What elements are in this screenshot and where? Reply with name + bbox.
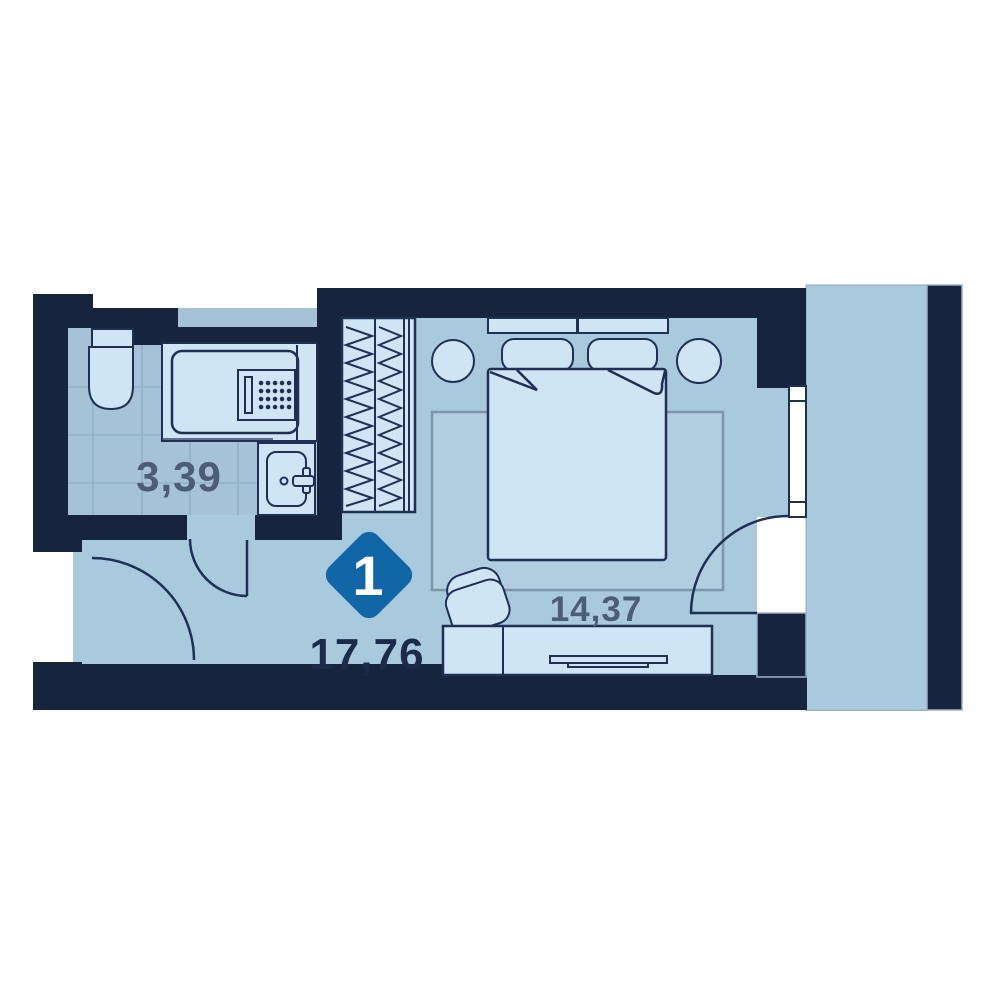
area-label-bedroom: 14,37 bbox=[550, 590, 643, 629]
sink-icon bbox=[258, 443, 315, 515]
balcony-floor bbox=[806, 285, 927, 710]
wall-bottom-left-corner bbox=[33, 662, 82, 710]
tv-screen bbox=[550, 656, 667, 663]
hallway-floor bbox=[73, 528, 342, 668]
window-frame bbox=[789, 386, 806, 517]
area-label-bathroom: 3,39 bbox=[136, 453, 222, 500]
tv-stand-icon bbox=[443, 626, 712, 675]
wall-entry-step bbox=[33, 515, 82, 552]
bedroom-floor-window-nook bbox=[757, 385, 789, 517]
tv-base bbox=[568, 663, 648, 667]
toilet-bowl bbox=[89, 347, 133, 409]
nightstand-left-icon bbox=[432, 340, 474, 382]
wardrobe-icon bbox=[342, 318, 415, 512]
sink-tap-spout bbox=[293, 476, 314, 486]
nightstand-right-icon bbox=[677, 339, 721, 383]
pillow-left bbox=[502, 339, 573, 371]
bathroom-doorway-floor bbox=[187, 512, 255, 542]
bathtub-fixture-slot bbox=[245, 377, 252, 413]
wall-bathroom-bottom-left bbox=[68, 515, 187, 540]
wall-left bbox=[33, 294, 68, 552]
headboard-left bbox=[488, 318, 577, 333]
toilet-tank bbox=[92, 329, 133, 347]
toilet-icon bbox=[89, 329, 133, 409]
wall-right-lower bbox=[757, 613, 806, 677]
bed-blanket bbox=[488, 369, 666, 560]
floor-plan-canvas: 1 3,39 14,37 17,76 bbox=[0, 0, 1000, 1000]
wall-balcony-right bbox=[927, 285, 962, 710]
window bbox=[789, 386, 806, 517]
wall-bath-bedroom-divider bbox=[317, 318, 342, 540]
wall-bathroom-bottom-right bbox=[255, 515, 342, 540]
room-count-badge-value: 1 bbox=[352, 544, 383, 607]
area-label-total: 17,76 bbox=[309, 630, 424, 679]
wall-right-upper bbox=[757, 288, 806, 388]
entrance-door-opening bbox=[33, 552, 73, 662]
floor-plan: 1 3,39 14,37 17,76 bbox=[0, 0, 1000, 1000]
pillow-right bbox=[588, 339, 657, 371]
wall-bedroom-top bbox=[317, 288, 806, 318]
bathtub-icon bbox=[162, 343, 317, 441]
headboard-right bbox=[578, 318, 668, 333]
wall-bottom-bedroom bbox=[443, 675, 807, 710]
